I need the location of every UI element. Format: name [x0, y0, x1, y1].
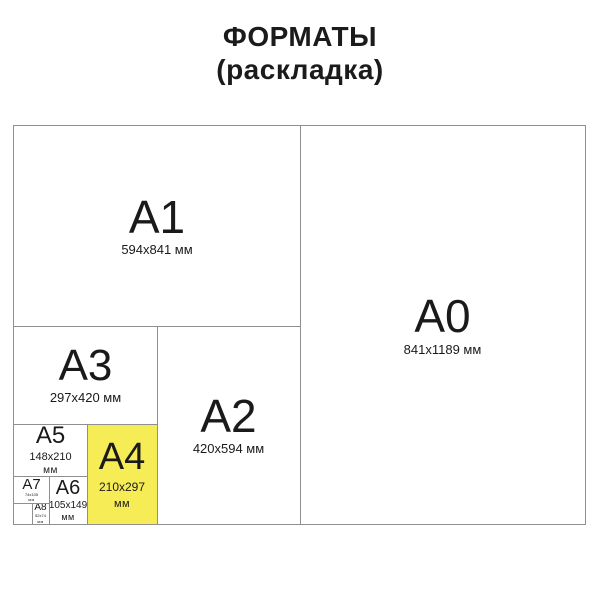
format-a5-unit: мм	[43, 466, 58, 476]
format-a3-size: 297x420 мм	[50, 391, 121, 406]
format-a7-label: A7	[22, 477, 40, 492]
page-title: ФОРМАТЫ (раскладка)	[0, 20, 600, 86]
format-a4-box: A4 210x297 мм	[87, 424, 157, 524]
format-a2-size: 420x594 мм	[193, 442, 264, 457]
format-a5-box: A5 148x210 мм	[14, 424, 87, 476]
paper-formats-diagram: A1 594x841 мм A0 841x1189 мм A3 297x420 …	[13, 125, 586, 525]
format-a2-label: A2	[200, 393, 256, 439]
title-line-1: ФОРМАТЫ	[0, 20, 600, 53]
divider-a8-left	[32, 503, 33, 524]
divider-a7-a6	[49, 476, 50, 524]
format-a7-box: A7 74x105 мм	[14, 476, 49, 503]
format-a8-unit: мм	[37, 520, 44, 524]
format-a5-label: A5	[36, 424, 65, 448]
format-a3-box: A3 297x420 мм	[14, 326, 157, 424]
title-line-2: (раскладка)	[0, 53, 600, 86]
format-a1-size: 594x841 мм	[121, 243, 192, 258]
format-a0-box: A0 841x1189 мм	[300, 126, 585, 524]
format-a8-label: A8	[34, 503, 46, 513]
format-a6-label: A6	[56, 478, 80, 498]
format-a5-size: 148x210	[29, 451, 71, 464]
format-a1-box: A1 594x841 мм	[14, 126, 300, 326]
format-a6-unit: мм	[61, 513, 74, 522]
format-a3-label: A3	[59, 344, 113, 388]
format-a4-unit: мм	[114, 499, 130, 510]
divider-a3-bottom	[14, 424, 158, 425]
format-a4-label: A4	[99, 438, 145, 476]
format-a0-size: 841x1189 мм	[404, 343, 482, 358]
divider-a1-a0	[300, 126, 301, 524]
format-a8-box: A8 52x74 мм	[32, 503, 49, 524]
divider-a5-bottom	[14, 476, 88, 477]
format-a4-size: 210x297	[99, 481, 145, 495]
format-a2-box: A2 420x594 мм	[157, 326, 300, 524]
format-a6-size: 105x149	[49, 500, 87, 512]
divider-a3-a2	[157, 326, 158, 524]
divider-a5-a4	[87, 424, 88, 524]
format-a0-label: A0	[414, 293, 470, 339]
format-a1-label: A1	[129, 194, 185, 240]
format-a6-box: A6 105x149 мм	[49, 476, 87, 524]
